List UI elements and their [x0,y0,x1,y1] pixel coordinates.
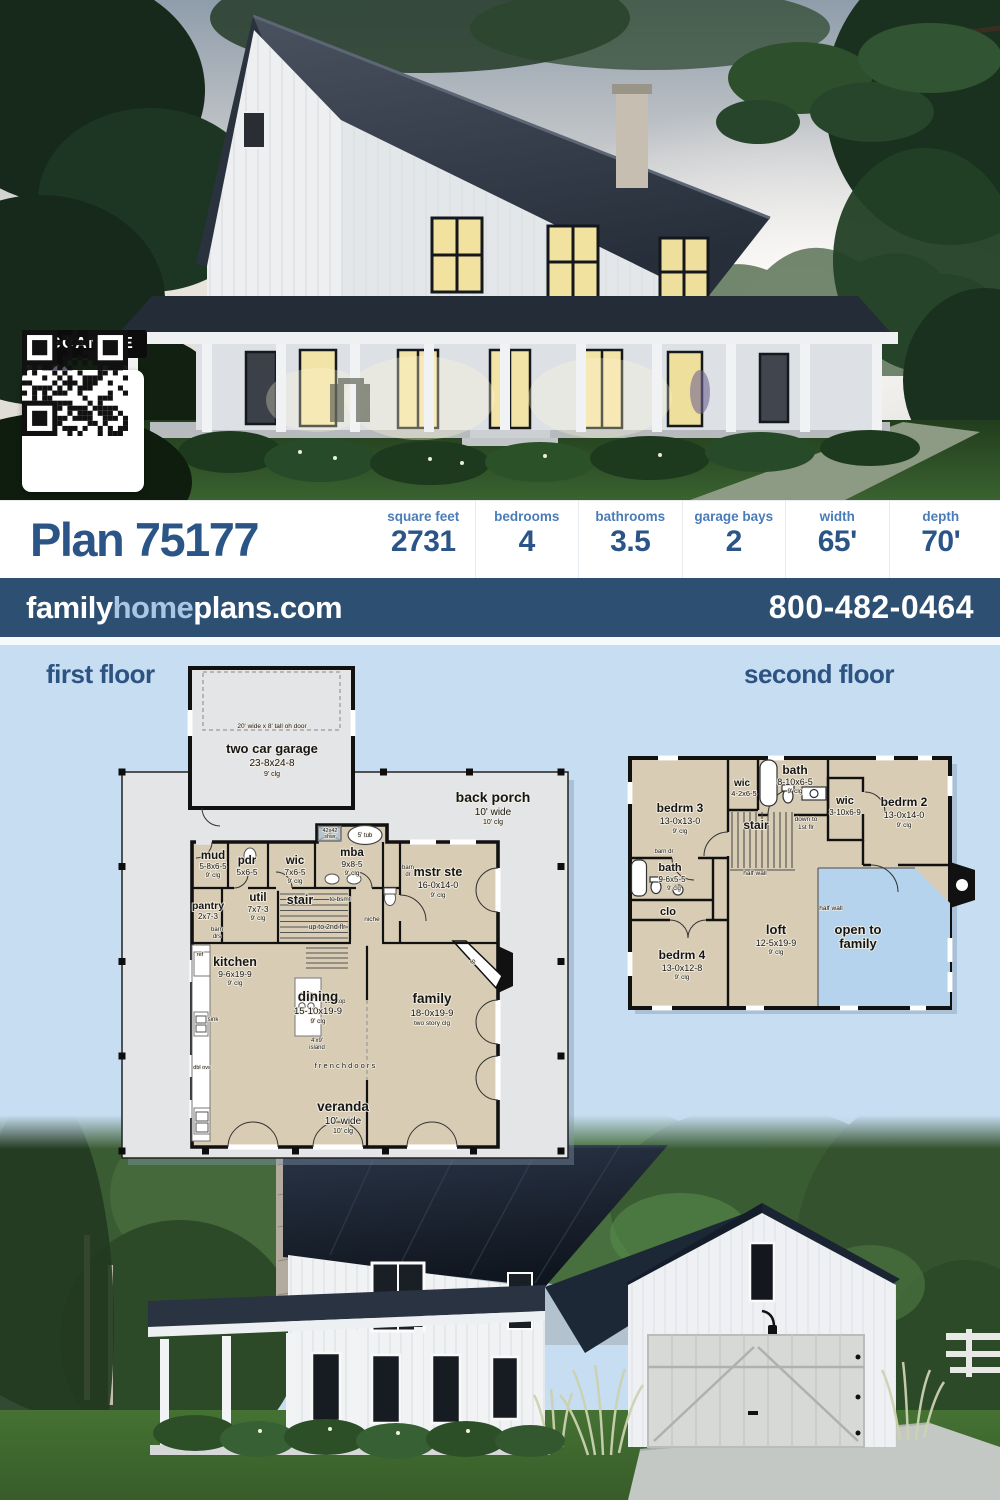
mba-label: mba [340,847,364,859]
mud-label: mud [201,850,225,862]
stat-value: 3.5 [579,525,682,559]
stat-width: width 65' [785,501,889,578]
brand-plans: plans.com [193,590,342,625]
pdr-label: pdr [238,855,257,867]
wic-top-label: wic [733,778,751,789]
wic-mid-dims: 3-10x6-9 [829,808,861,817]
down-to-l2: 1st flr [798,824,815,831]
wic-label: wic [285,855,305,867]
stat-depth: depth 70' [889,501,993,578]
qr-code [22,370,144,492]
mba-dims: 9x8-5 [341,859,363,869]
island-l2: island [309,1045,325,1051]
stats-bar: Plan 75177 square feet 2731 bedrooms 4 b… [0,500,1000,578]
clo-label: clo [660,906,676,918]
half-wall-2: half wall [819,905,843,912]
family-clg: two story clg [414,1020,451,1027]
loft-dims: 12-5x19-9 [756,938,797,948]
garage-dims: 23-8x24-8 [249,758,294,769]
back-porch-clg: 10' clg [483,819,503,826]
stat-value: 2 [683,525,786,559]
util-label: util [249,892,266,904]
garage-door-note: 20' wide x 8' tall oh door [237,723,307,730]
bedrm4-dims: 13-0x12-8 [662,963,703,973]
up-to-2nd-label: up to 2nd flr [309,924,347,931]
kitchen-label: kitchen [213,955,257,969]
wic-top-dims: 4-2x6-5 [731,789,756,798]
dining-label: dining [298,989,339,1004]
stat-value: 4 [476,525,579,559]
dining-clg: 9' clg [311,1018,326,1025]
bath-top-dims: 8-10x6-5 [777,777,813,787]
first-floor-plan: 20' wide x 8' tall oh door two car garag… [110,660,580,1165]
bedrm3-label: bedrm 3 [657,801,704,815]
open-to-family-l2: family [839,936,877,951]
first-floor-heading: first floor [46,659,155,690]
shwr-l2: shwr [324,834,336,840]
stat-garage-bays: garage bays 2 [682,501,786,578]
wic-mid-label: wic [835,795,854,807]
garage-outline [190,668,353,808]
pantry-label: pantry [192,900,224,912]
bedrm2-dims: 13-0x14-0 [884,810,925,820]
wic-dims: 7x6-5 [284,867,306,877]
qr-block: SCAN ME [22,330,147,492]
kitchen-clg: 9' clg [228,980,243,987]
back-porch-label: back porch [456,789,531,805]
open-to-family-l1: open to [835,922,882,937]
island-l1: 4'x9' [311,1038,323,1044]
stats: square feet 2731 bedrooms 4 bathrooms 3.… [372,501,1000,578]
half-wall-1: half wall [743,870,767,877]
family-label: family [412,991,452,1006]
garage-label: two car garage [226,741,318,756]
mba-clg: 9' clg [345,870,360,877]
second-floor-plan: bedrm 3 13-0x13-0 9' clg wic 4-2x6-5 bat… [618,740,988,1030]
loft-label: loft [766,922,787,937]
to-bsmt-label: to bsmt [329,896,351,903]
divider-strip [0,637,1000,645]
sink-label: sink [208,1017,220,1023]
second-floor-heading: second floor [744,659,894,690]
loft-clg: 9' clg [769,949,784,956]
bedrm2-label: bedrm 2 [881,795,928,809]
bedrm3-dims: 13-0x13-0 [660,816,701,826]
dbl-ovs-label: dbl ovs [193,1065,211,1071]
util-clg: 9' clg [251,915,266,922]
open-to-family-area [818,868,950,1006]
stat-value: 65' [786,525,889,559]
brand-url: familyhomeplans.com [26,590,342,626]
ref-label: ref [197,952,204,958]
brand-home: home [113,590,194,625]
top-photo-illustration [0,0,1000,500]
bath-left-label: bath [658,862,682,874]
mstr-dims: 16-0x14-0 [418,880,459,890]
util-dims: 7x7-3 [247,904,269,914]
pantry-note-l2: drs [213,934,221,940]
stair-label: stair [287,893,314,907]
mud-clg: 9' clg [206,872,221,879]
dining-dims: 15-10x19-9 [294,1006,342,1017]
qr-code-pattern [22,330,128,436]
barn-dr2-label: barn dr [654,849,673,855]
stair2-label: stair [743,818,769,832]
bedrm4-clg: 9' clg [675,974,690,981]
pdr-dims: 5x6-5 [236,867,258,877]
pantry-note-l1: barn [211,927,223,933]
floor-plans-section: first floor second floor [0,645,1000,1500]
garage-clg: 9' clg [264,771,280,778]
stat-label: square feet [372,509,475,524]
veranda-width: 10' wide [325,1116,362,1127]
stat-square-feet: square feet 2731 [372,501,475,578]
stat-label: width [786,509,889,524]
top-photo: SCAN ME [0,0,1000,500]
bath-left-clg: 9' clg [667,886,681,892]
kitchen-dims: 9-6x19-9 [218,969,252,979]
pantry-dims: 2x7-3 [198,912,219,921]
family-dims: 18-0x19-9 [411,1008,454,1019]
barn-dr-l1: barn [402,865,414,871]
brand-family: family [26,590,113,625]
wic-clg: 9' clg [288,878,303,885]
bedrm3-clg: 9' clg [673,828,688,835]
mstr-clg: 9' clg [431,892,446,899]
stat-bathrooms: bathrooms 3.5 [578,501,682,578]
bath-left-dims: 9-6x5-5 [658,875,686,884]
bedrm4-label: bedrm 4 [659,948,706,962]
stat-value: 2731 [372,525,475,559]
veranda-label: veranda [317,1099,369,1114]
veranda-clg: 10' clg [333,1128,353,1135]
french-doors-label: f r e n c h d o o r s [315,1061,376,1070]
phone-number: 800-482-0464 [769,589,974,626]
plan-title: Plan 75177 [0,501,372,578]
stat-label: depth [890,509,993,524]
mstr-label: mstr ste [414,865,463,879]
bath-top-clg: 9' clg [788,788,803,795]
white-fence [946,1329,1000,1377]
stat-bedrooms: bedrooms 4 [475,501,579,578]
mud-dims: 5-8x6-5 [199,862,227,871]
down-to-l1: down to [795,816,818,823]
barn-dr-l2: dr [405,872,410,878]
bedrm2-clg: 9' clg [897,822,912,829]
tub-label: 5' tub [358,833,373,839]
stat-label: bathrooms [579,509,682,524]
brand-bar: familyhomeplans.com 800-482-0464 [0,578,1000,637]
stat-label: garage bays [683,509,786,524]
bottom-photo-illustration [0,1115,1000,1500]
bath-top-label: bath [782,763,807,777]
stat-value: 70' [890,525,993,559]
niche-label: niche [364,916,380,923]
stat-label: bedrooms [476,509,579,524]
back-porch-width: 10' wide [475,807,512,818]
